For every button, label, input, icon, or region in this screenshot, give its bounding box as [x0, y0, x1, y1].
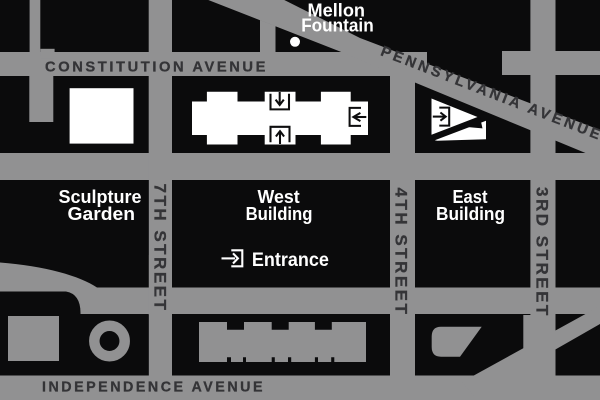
svg-text:7TH STREET: 7TH STREET: [151, 184, 170, 313]
svg-text:Fountain: Fountain: [301, 15, 374, 35]
svg-text:Garden: Garden: [68, 204, 136, 224]
svg-text:INDEPENDENCE AVENUE: INDEPENDENCE AVENUE: [42, 380, 265, 396]
svg-text:Building: Building: [246, 204, 313, 224]
svg-text:4TH STREET: 4TH STREET: [392, 188, 411, 317]
svg-text:Entrance: Entrance: [252, 250, 329, 271]
svg-text:CONSTITUTION AVENUE: CONSTITUTION AVENUE: [45, 59, 268, 75]
svg-text:3RD STREET: 3RD STREET: [533, 187, 552, 318]
svg-text:Building: Building: [436, 204, 505, 224]
